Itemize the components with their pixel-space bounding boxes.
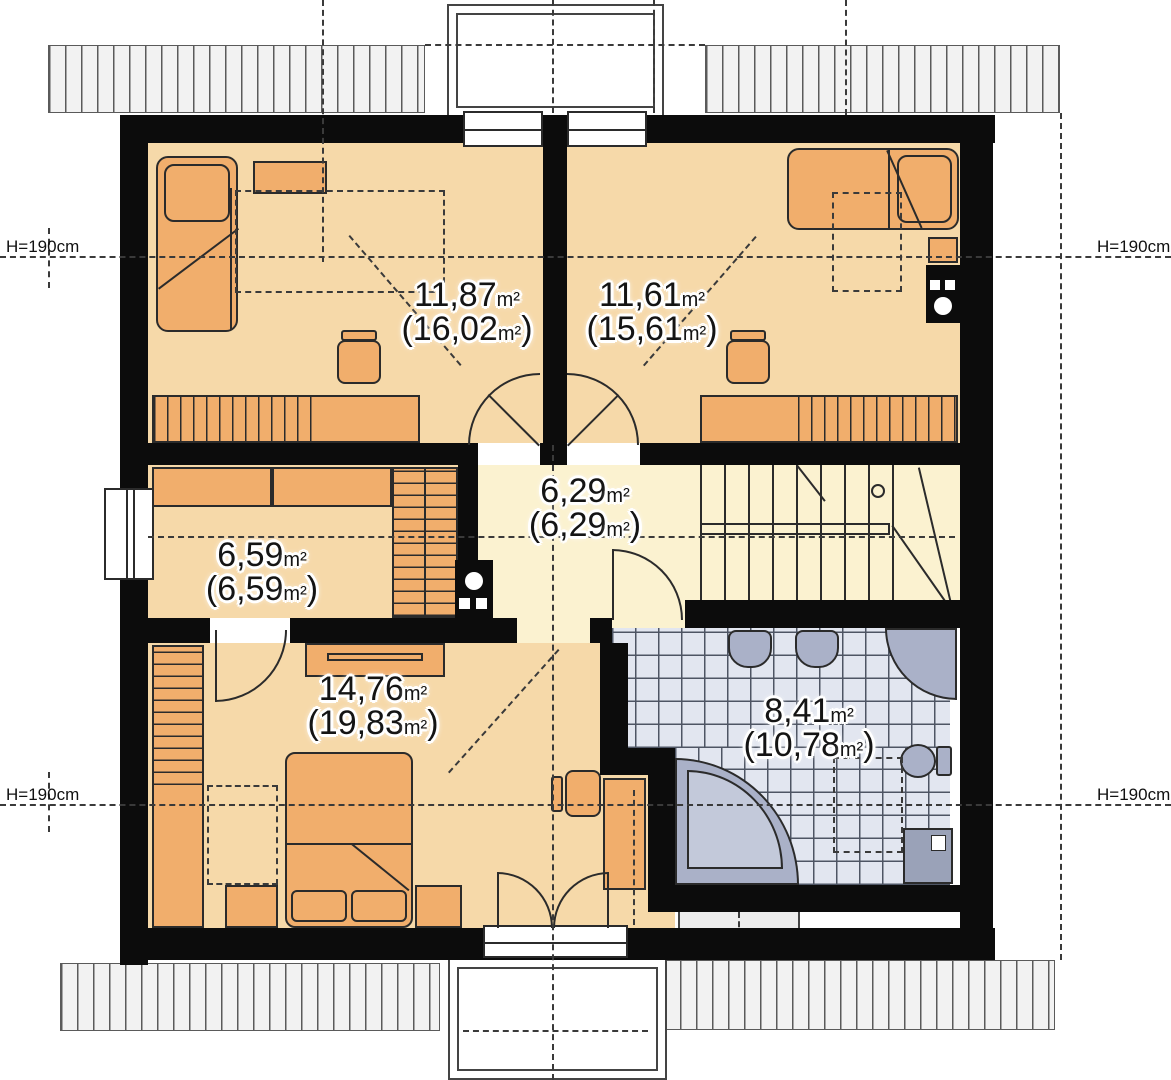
wall-bedroom-divider [543, 115, 567, 465]
area-net: 8,41m² [743, 694, 874, 728]
desk-chair-seat [565, 770, 601, 817]
nightstand [225, 885, 278, 928]
dresser-top-left [152, 395, 420, 443]
area-net: 6,29m² [529, 474, 641, 508]
nightstand [928, 237, 958, 263]
area-gross: (15,61m²) [586, 312, 717, 346]
room-label-bathroom: 8,41m² (10,78m²) [743, 694, 874, 762]
wall-bathroom-bottom [648, 885, 960, 912]
nightstand [415, 885, 462, 928]
height-marker-right-bottom: H=190cm [1097, 785, 1170, 805]
room-label-room-left: 6,59m² (6,59m²) [206, 538, 318, 606]
roof-eave-top-left [48, 45, 425, 113]
chimney-flue-circle [465, 572, 483, 590]
toilet-bowl [900, 744, 936, 778]
chimney-flue-circle [934, 297, 952, 315]
room-label-bedroom-bottom: 14,76m² (19,83m²) [307, 672, 438, 740]
cabinet-left-room [272, 467, 392, 507]
stair-newel-post [871, 484, 885, 498]
room-label-bedroom-top-left: 11,87m² (16,02m²) [401, 278, 532, 346]
area-net: 11,61m² [586, 278, 717, 312]
chimney-flue-square [945, 280, 955, 290]
height-line-upper [0, 256, 1171, 258]
chimney-flue-square [930, 280, 940, 290]
toilet-tank [936, 746, 952, 776]
area-net: 14,76m² [307, 672, 438, 706]
sink [795, 630, 839, 668]
area-gross: (6,59m²) [206, 572, 318, 606]
area-gross: (10,78m²) [743, 728, 874, 762]
wall-bathroom-step [648, 775, 675, 890]
shelf-inner-line [327, 653, 423, 661]
dresser-drawer-lines [798, 397, 956, 441]
dormer-balcony-bottom-inner [457, 967, 658, 1071]
window-frame-line [465, 129, 541, 131]
wardrobe-rod-line [424, 469, 426, 616]
wall-bathroom-top [685, 600, 960, 628]
desk-bottom-bedroom [603, 778, 646, 890]
dresser-top-right [700, 395, 958, 443]
window-frame-line [569, 129, 645, 131]
stair-tread [892, 465, 894, 600]
axis-line [653, 0, 655, 113]
stair-handrail [700, 523, 890, 535]
area-gross: (16,02m²) [401, 312, 532, 346]
bed-sheet-line [230, 188, 232, 330]
bed-pillow [351, 890, 407, 922]
chimney-flue-square [476, 598, 487, 609]
dormer-balcony-top-inner [456, 13, 655, 108]
desk-chair-seat [726, 340, 770, 384]
roof-window-outline [207, 785, 278, 885]
area-net: 11,87m² [401, 278, 532, 312]
roof-eave-bottom-left [60, 963, 440, 1031]
area-gross: (19,83m²) [307, 706, 438, 740]
area-net: 6,59m² [206, 538, 318, 572]
wall-bathroom-step [600, 748, 675, 775]
wall-hall-top [640, 443, 960, 465]
window-dormer-left [463, 111, 543, 147]
window-left-wall [104, 488, 154, 580]
roof-eave-top-right [705, 45, 1060, 113]
dresser-drawer-lines [154, 397, 318, 441]
wall-mid-low [120, 618, 210, 643]
wall-outer-right [960, 115, 993, 960]
room-label-hall: 6,29m² (6,29m²) [529, 474, 641, 542]
cabinet-detail [931, 835, 946, 851]
french-door-sill [483, 925, 628, 958]
wardrobe-bottom-bedroom [152, 645, 204, 928]
dormer-balcony-bottom [448, 958, 667, 1080]
roof-edge-line-top [425, 44, 705, 46]
window-frame-line [133, 490, 135, 578]
height-marker-left-bottom: H=190cm [6, 785, 79, 805]
axis-line-right [1060, 113, 1062, 960]
dormer-balcony-top [447, 4, 664, 117]
height-line-lower [0, 804, 1171, 806]
bed-edge-line [287, 843, 411, 845]
chimney-bedroom [926, 265, 960, 323]
roof-edge-line-bottom [463, 1030, 648, 1032]
window-frame-line [126, 490, 128, 578]
axis-line [845, 0, 847, 115]
chimney-flue-square [459, 598, 470, 609]
sink [728, 630, 772, 668]
wall-room-left-side [458, 443, 478, 568]
wall-hall-top [148, 443, 460, 465]
cabinet-left-room [152, 467, 272, 507]
bed-pillow [164, 164, 230, 222]
floor-plan: H=190cm H=190cm H=190cm H=190cm 11,87m² … [0, 0, 1171, 1080]
wall-mid-low-pier [590, 618, 612, 643]
height-marker-left-top: H=190cm [6, 237, 79, 257]
chimney-hall [455, 560, 493, 622]
axis-line-center-top [552, 0, 554, 113]
roof-window-outline [833, 757, 903, 853]
window-dormer-right [567, 111, 647, 147]
desk-chair-seat [337, 340, 381, 384]
room-label-bedroom-top-right: 11,61m² (15,61m²) [586, 278, 717, 346]
sill-line [485, 942, 626, 944]
ceiling-line [633, 790, 635, 925]
wardrobe-shelf-lines [154, 647, 202, 785]
area-gross: (6,29m²) [529, 508, 641, 542]
wardrobe-left-room [392, 467, 458, 618]
bathroom-cabinet [903, 828, 953, 884]
bed-pillow [291, 890, 347, 922]
height-marker-right-top: H=190cm [1097, 237, 1170, 257]
roof-window-outline [832, 192, 902, 292]
roof-eave-bottom-right [663, 960, 1055, 1030]
